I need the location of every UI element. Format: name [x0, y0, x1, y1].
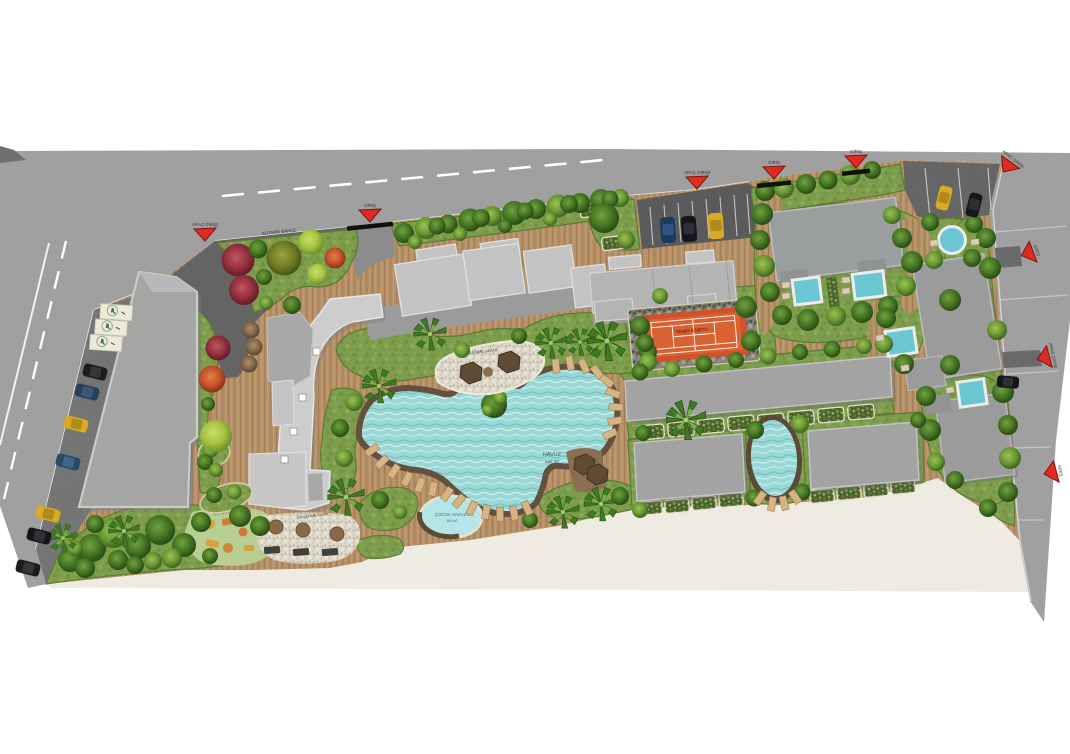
svg-text:GİRİŞ: GİRİŞ [768, 160, 780, 165]
svg-text:GİRİŞ: GİRİŞ [850, 149, 862, 154]
svg-text:ÇOCUK HAVUZU: ÇOCUK HAVUZU [435, 512, 470, 517]
svg-text:ARAÇ GİRİŞİ: ARAÇ GİRİŞİ [192, 222, 218, 227]
svg-text:ARAÇ GİRİŞİ: ARAÇ GİRİŞİ [684, 170, 710, 175]
svg-text:GİRİŞ: GİRİŞ [364, 203, 376, 208]
svg-text:HAVUZ: HAVUZ [543, 452, 562, 458]
svg-text:60 m²: 60 m² [447, 518, 458, 523]
svg-text:536 m²: 536 m² [545, 459, 560, 464]
